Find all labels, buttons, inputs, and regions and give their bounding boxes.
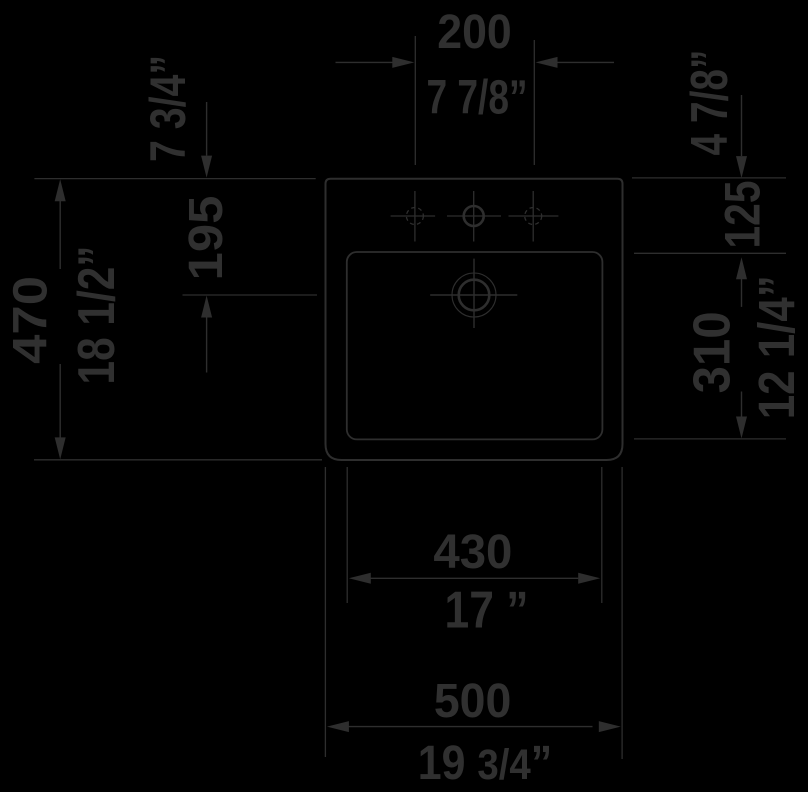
svg-text:7 7/8”: 7 7/8” [427, 72, 528, 125]
svg-text:125: 125 [714, 181, 770, 249]
svg-text:500: 500 [434, 675, 512, 728]
svg-text:19 3/4”: 19 3/4” [418, 737, 553, 790]
svg-text:4 7/8”: 4 7/8” [681, 50, 739, 156]
svg-text:17 ”: 17 ” [445, 581, 529, 639]
svg-text:470: 470 [5, 276, 58, 364]
svg-text:195: 195 [180, 196, 233, 281]
svg-text:200: 200 [437, 6, 512, 59]
svg-text:12 1/4”: 12 1/4” [748, 275, 805, 419]
svg-text:310: 310 [683, 311, 741, 393]
svg-text:18 1/2”: 18 1/2” [68, 246, 126, 385]
svg-text:430: 430 [433, 526, 512, 579]
svg-text:7 3/4”: 7 3/4” [140, 55, 196, 162]
